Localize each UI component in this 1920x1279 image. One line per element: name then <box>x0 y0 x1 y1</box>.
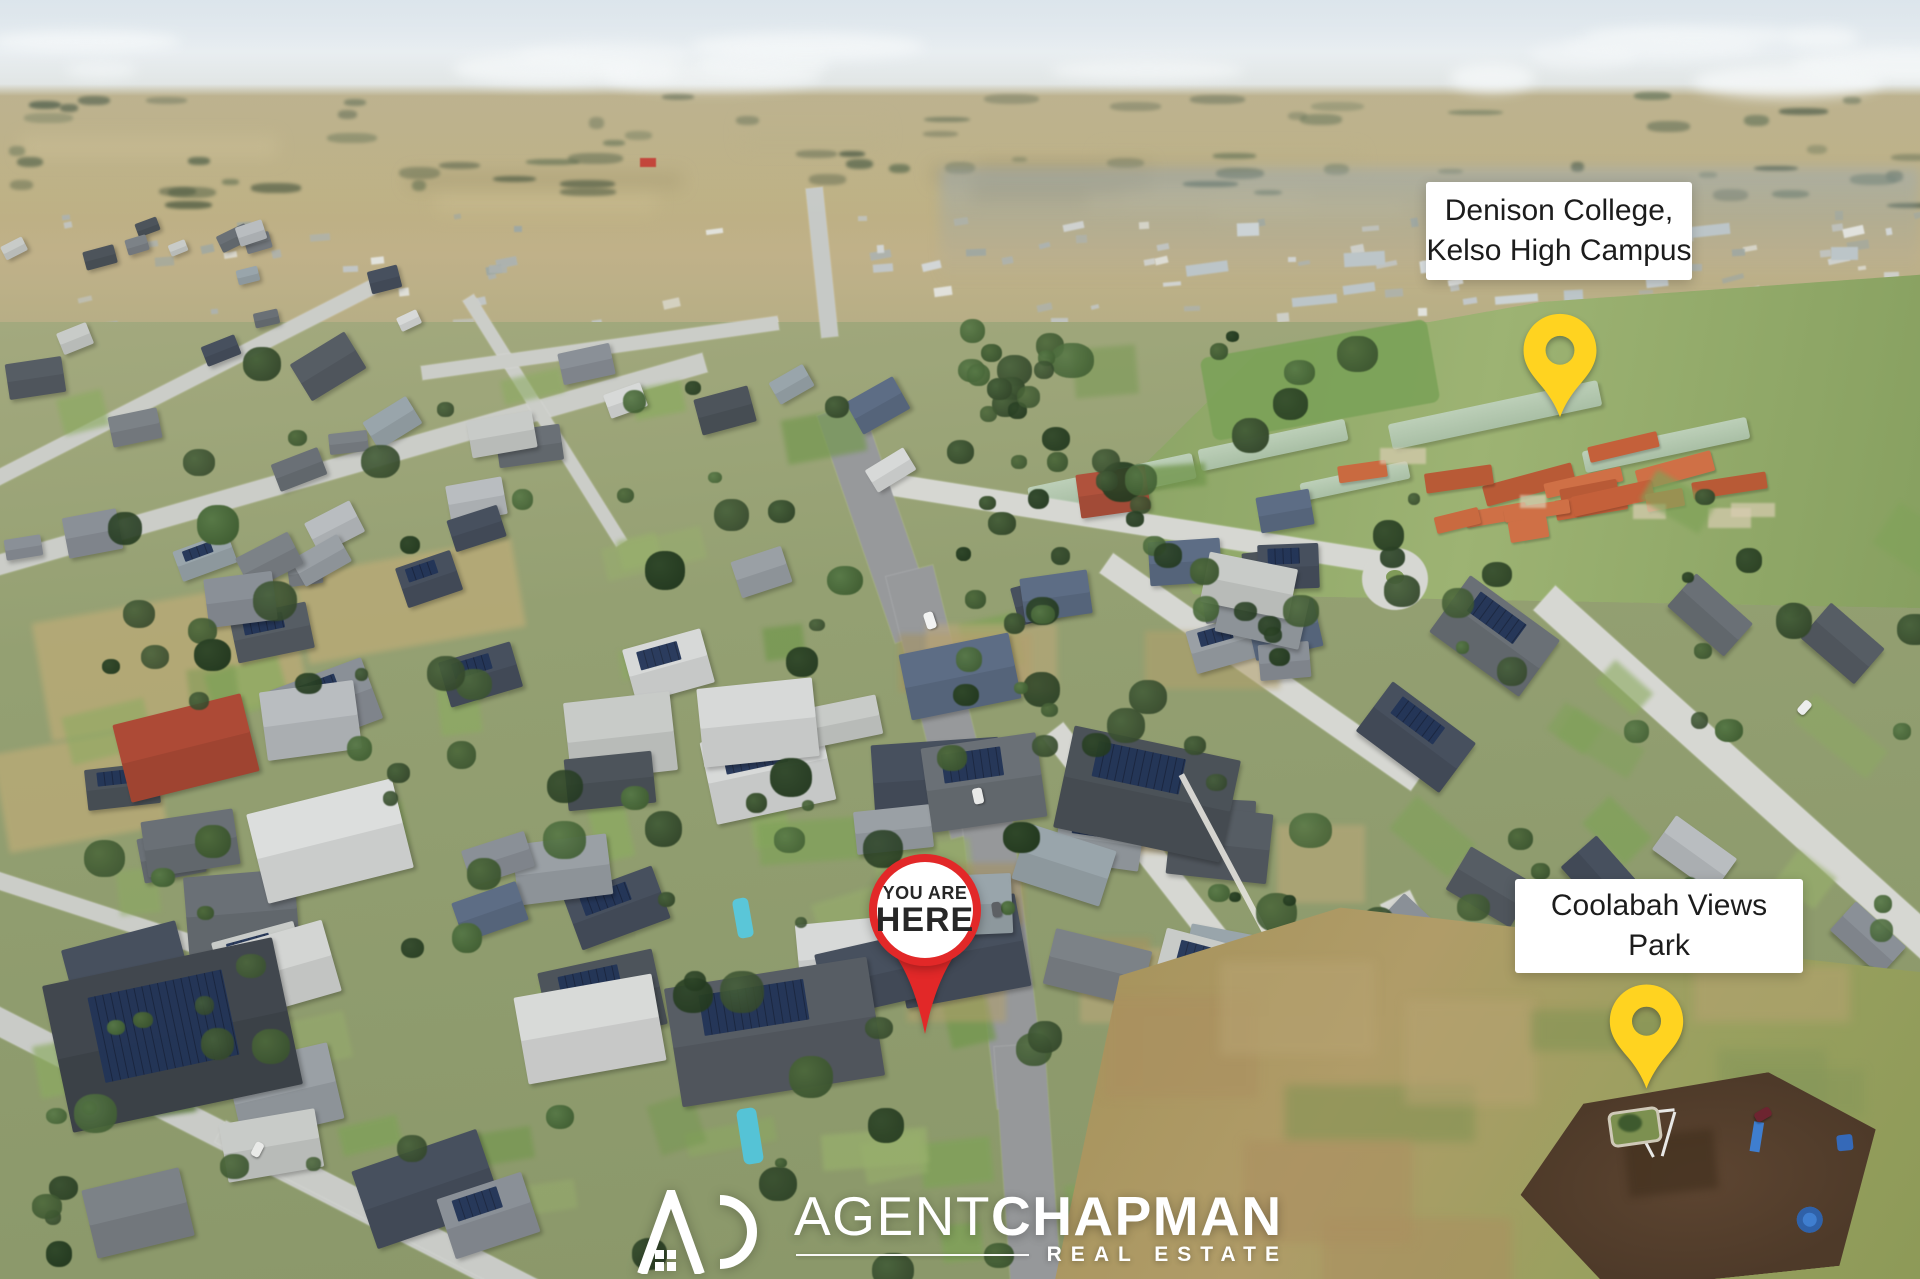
agency-logo: AGENTCHAPMAN REAL ESTATE <box>0 0 1920 1279</box>
agency-name: AGENTCHAPMAN <box>794 1184 1283 1248</box>
agency-name-agent: AGENT <box>794 1185 991 1247</box>
aerial-map: Denison College, Kelso High Campus Coola… <box>0 0 1920 1279</box>
agency-tagline: REAL ESTATE <box>796 1243 1288 1267</box>
agent-chapman-monogram-icon <box>636 1190 764 1274</box>
agency-name-chapman: CHAPMAN <box>991 1185 1283 1247</box>
tagline-text: REAL ESTATE <box>1047 1243 1288 1267</box>
tagline-rule <box>796 1254 1029 1257</box>
